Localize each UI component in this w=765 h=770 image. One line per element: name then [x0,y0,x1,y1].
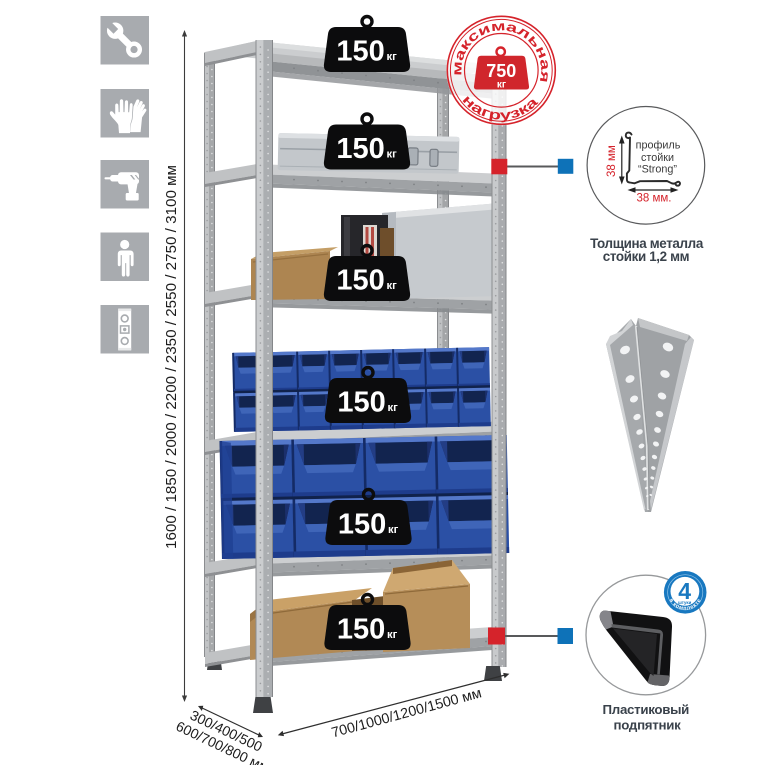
svg-text:150: 150 [336,133,384,165]
svg-text:кг: кг [388,402,399,414]
svg-text:кг: кг [387,51,398,63]
svg-text:стойки: стойки [641,152,674,164]
svg-text:стойки 1,2 мм: стойки 1,2 мм [603,249,690,264]
svg-text:кг: кг [497,79,506,90]
svg-text:подпятник: подпятник [614,718,682,733]
svg-text:профиль: профиль [636,139,681,151]
svg-text:кг: кг [387,280,398,292]
svg-text:кг: кг [387,629,398,641]
svg-text:150: 150 [338,509,386,541]
svg-text:38 мм.: 38 мм. [637,193,672,205]
svg-text:150: 150 [336,265,384,297]
svg-text:1600 / 1850 / 2000 / 2200 / 23: 1600 / 1850 / 2000 / 2200 / 2350 / 2550 … [163,165,180,549]
svg-text:кг: кг [388,524,399,536]
svg-text:750: 750 [486,61,516,81]
svg-text:Пластиковый: Пластиковый [603,702,690,717]
svg-text:150: 150 [337,387,385,419]
svg-text:“Strong”: “Strong” [638,164,677,176]
svg-text:кг: кг [387,149,398,161]
svg-text:38 мм: 38 мм [606,145,618,177]
svg-text:штуки: штуки [678,600,692,605]
svg-text:150: 150 [337,614,385,646]
svg-text:150: 150 [336,36,384,68]
